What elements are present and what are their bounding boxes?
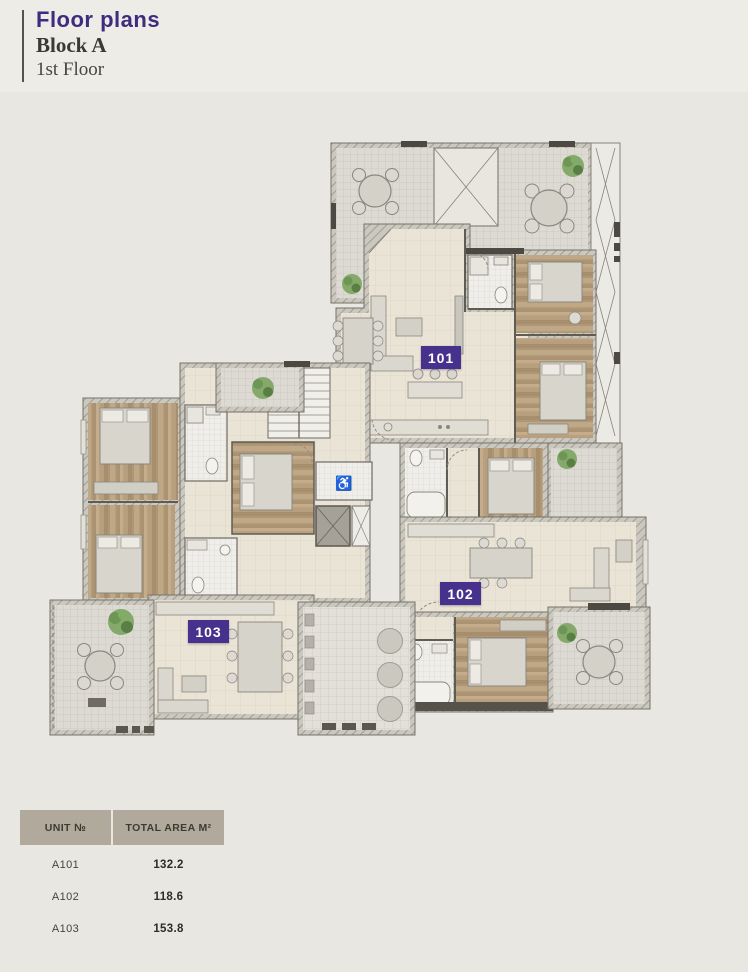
planters — [378, 629, 403, 722]
unit-103-bedroom-3 — [232, 442, 314, 534]
elevator — [316, 506, 350, 546]
terrace-table-2 — [525, 184, 574, 233]
louvers-bottom — [322, 723, 376, 730]
table-row: A102 118.6 — [20, 881, 224, 913]
plant-balcony-tl — [252, 377, 274, 399]
unit-101-bedroom-2 — [515, 338, 593, 438]
unit-badge-101[interactable]: 101 — [421, 346, 461, 369]
area-cell: 132.2 — [113, 859, 224, 871]
unit-101-bathroom — [468, 255, 512, 309]
unit-badge-102[interactable]: 102 — [440, 582, 481, 605]
plant-terrace-br — [557, 623, 577, 643]
unit-102-lower — [400, 612, 553, 712]
unit-cell: A101 — [20, 859, 111, 871]
unit-103-bathroom-1 — [185, 405, 227, 481]
unit-103-living — [148, 595, 314, 719]
terrace-bottom-left — [50, 600, 154, 735]
header-total-area: TOTAL AREA M² — [113, 810, 224, 845]
unit-103-bathroom-2 — [185, 538, 237, 598]
terrace-bottom-right — [548, 603, 650, 709]
plant-terrace-left — [342, 274, 362, 294]
area-cell: 118.6 — [113, 891, 224, 903]
unit-102-bedroom-2 — [455, 617, 548, 707]
unit-cell: A103 — [20, 923, 111, 935]
accessible-wc: ♿ — [316, 462, 372, 500]
terrace-table-3 — [577, 640, 623, 685]
unit-badge-103[interactable]: 103 — [188, 620, 229, 643]
table-row: A103 153.8 — [20, 913, 224, 945]
balcony-bottom-center — [298, 602, 415, 735]
area-cell: 153.8 — [113, 923, 224, 935]
unit-103-bedrooms-left — [81, 398, 183, 603]
wheelchair-icon: ♿ — [335, 475, 352, 492]
area-table: UNIT № TOTAL AREA M² A101 132.2 A102 118… — [20, 810, 224, 945]
shaft — [352, 506, 370, 546]
unit-101-bedroom-1 — [515, 255, 593, 333]
unit-102-bedroom-1 — [479, 448, 543, 522]
plant-balcony-mid — [557, 449, 577, 469]
area-table-body: A101 132.2 A102 118.6 A103 153.8 — [20, 849, 224, 945]
header-unit-no: UNIT № — [20, 810, 111, 845]
unit-102-living — [400, 517, 648, 617]
table-row: A101 132.2 — [20, 849, 224, 881]
area-table-header: UNIT № TOTAL AREA M² — [20, 810, 224, 845]
unit-101-dining — [333, 318, 383, 364]
skylight-shaft — [434, 148, 498, 226]
unit-cell: A102 — [20, 891, 111, 903]
balcony-mid-right — [546, 443, 622, 527]
unit-101 — [333, 224, 596, 443]
plant-terrace-right — [562, 155, 584, 177]
unit-102-upper — [400, 443, 548, 527]
plant-terrace-bl — [108, 609, 134, 635]
balcony-top-left — [216, 363, 304, 412]
